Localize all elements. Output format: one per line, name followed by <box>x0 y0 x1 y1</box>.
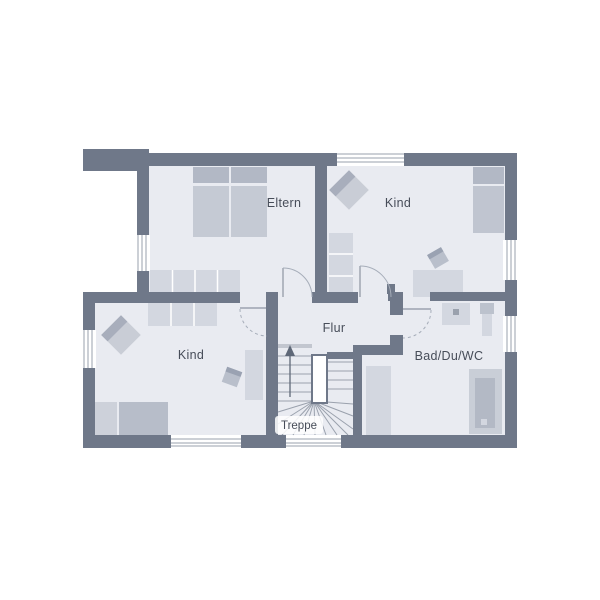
stair-void <box>312 355 327 403</box>
wall-top-a <box>149 153 337 166</box>
wc <box>480 303 494 336</box>
desk-kind-west <box>245 350 263 400</box>
floor-plan-canvas: Eltern Kind Kind Flur Bad/Du/WC Treppe <box>0 0 600 600</box>
window-top <box>337 150 404 166</box>
wardrobe-kind-west <box>148 303 217 326</box>
window-bad <box>503 316 520 352</box>
wall-eltern-west-b <box>137 271 149 292</box>
shower <box>469 369 502 434</box>
wall-mid-west <box>95 292 240 303</box>
wardrobe-eltern <box>150 270 240 292</box>
window-bottom-treppe <box>286 436 341 449</box>
window-eltern-west <box>134 235 150 271</box>
wall-right-a <box>505 153 517 240</box>
wall-bad-north-b <box>430 292 505 301</box>
wall-bad-west-stub <box>390 292 403 315</box>
label-eltern: Eltern <box>267 196 301 210</box>
bed-kind-ost <box>473 167 504 233</box>
wall-bottom-c <box>341 435 517 448</box>
wall-bottom-b <box>241 435 286 448</box>
wall-right-b <box>505 280 517 316</box>
wall-bottom-a <box>83 435 171 448</box>
washbasin <box>442 303 470 325</box>
bed-kind-west <box>95 402 168 436</box>
wall-left-a <box>83 292 95 330</box>
label-kind-ost: Kind <box>385 196 411 210</box>
window-kind-west <box>80 330 96 368</box>
wall-eltern-west-a <box>137 166 149 235</box>
wall-left-b <box>83 368 95 435</box>
label-bad: Bad/Du/WC <box>415 349 484 363</box>
wall-mid-center <box>312 292 358 303</box>
bath-cabinet <box>366 366 391 436</box>
label-flur: Flur <box>323 321 346 335</box>
wall-right-c <box>505 352 517 448</box>
wall-top-b <box>404 153 517 166</box>
label-kind-west: Kind <box>178 348 204 362</box>
wall-room-divider <box>315 166 327 303</box>
floor-plan-drawing: Eltern Kind Kind Flur Bad/Du/WC Treppe <box>0 0 600 600</box>
window-kind-ost <box>503 240 520 280</box>
label-treppe: Treppe <box>281 420 317 432</box>
wall-stair-west <box>266 292 278 435</box>
window-bottom-kind-west <box>171 436 241 449</box>
wall-stair-top-edge <box>327 352 362 359</box>
wardrobe-kind-ost <box>329 233 353 297</box>
wall-stair-east <box>353 352 362 435</box>
